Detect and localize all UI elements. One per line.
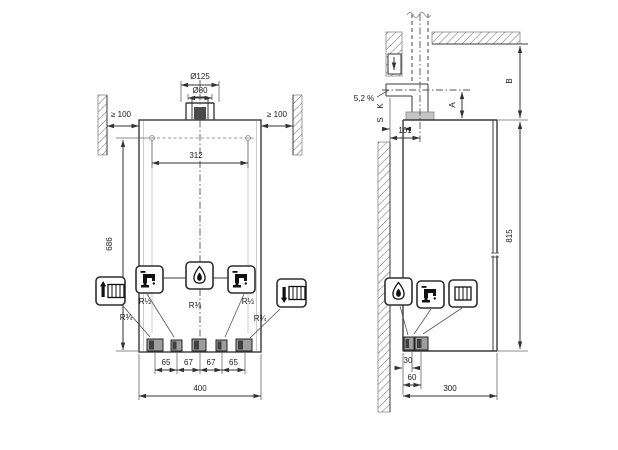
rear-offset-dimensions: 30 60 — [395, 352, 421, 395]
stub-spacing-1: 65 — [162, 358, 171, 367]
flue-inner-dia-label: Ø80 — [192, 86, 208, 95]
gas-flame-icon — [385, 278, 412, 305]
dim-label-k: K — [376, 103, 385, 109]
clearance-left-label: ≥ 100 — [111, 110, 132, 119]
front-view: Ø125 Ø80 ≥ 100 ≥ 100 31 — [96, 72, 306, 400]
radiator-icon — [449, 280, 477, 307]
hot-water-tap-icon — [136, 266, 163, 293]
body-depth-label: 300 — [443, 384, 457, 393]
horizontal-flue — [386, 84, 428, 112]
upper-wall-block — [386, 32, 402, 76]
total-height-dimension: 815 — [497, 122, 528, 351]
right-wall-hatch — [293, 95, 302, 155]
stub — [192, 339, 206, 351]
radiator-return-icon — [277, 279, 306, 307]
flue-slope-label: 5,2 % — [354, 94, 374, 103]
conn-label-gas: R¾ — [189, 301, 202, 310]
stub-spacing-4: 65 — [229, 358, 238, 367]
body-width-label: 400 — [193, 384, 207, 393]
body-depth-dimension: 300 — [403, 353, 497, 400]
stub — [216, 340, 227, 351]
flue-slope-annotation: 5,2 % — [354, 90, 389, 103]
vertical-flue-dashed — [407, 13, 431, 85]
stub — [171, 340, 182, 351]
boiler-installation-diagram: Ø125 Ø80 ≥ 100 ≥ 100 31 — [0, 0, 618, 450]
boiler-side-outline — [403, 120, 499, 351]
dimension-a: A — [448, 92, 462, 118]
wall-to-axis-dimension: 101 — [390, 126, 420, 138]
stub-spacing-3: 67 — [207, 358, 216, 367]
clearance-right-dimension: ≥ 100 — [261, 110, 293, 126]
conn-label-heating-return: R¾ — [254, 314, 267, 323]
flue-inner-dimension: Ø80 — [188, 86, 212, 100]
pipe-break-squiggle — [407, 13, 431, 18]
clearance-right-label: ≥ 100 — [267, 110, 288, 119]
wall-to-axis-label: 101 — [398, 126, 412, 135]
cold-water-tap-icon — [228, 266, 255, 293]
side-view: 5,2 % K S 101 A — [354, 13, 528, 413]
radiator-flow-icon — [96, 277, 125, 305]
dim-b-label: B — [505, 78, 514, 83]
dim-a-label: A — [448, 102, 457, 108]
ceiling-hatch — [432, 32, 528, 44]
clearance-left-dimension: ≥ 100 — [107, 110, 139, 126]
gas-flame-icon — [186, 262, 213, 289]
dim-label-s: S — [376, 117, 385, 122]
stub-spacing-dimensions: 65 67 67 65 — [155, 352, 245, 374]
stub-spacing-2: 67 — [184, 358, 193, 367]
rear-wall-hatch — [378, 98, 390, 412]
rear-offset-2-label: 60 — [408, 373, 417, 382]
stub — [415, 337, 428, 350]
stub — [147, 339, 163, 351]
rear-offset-1-label: 30 — [404, 356, 413, 365]
side-connection-stubs — [404, 337, 428, 350]
conn-label-hot-water: R½ — [139, 297, 152, 306]
tap-icon — [417, 281, 444, 308]
diagram-svg: Ø125 Ø80 ≥ 100 ≥ 100 31 — [0, 0, 618, 450]
stub — [236, 339, 252, 351]
left-wall-hatch — [98, 95, 107, 155]
body-height-label: 686 — [105, 237, 114, 251]
flue-outer-dia-label: Ø125 — [190, 72, 210, 81]
conn-label-cold-water: R½ — [242, 297, 255, 306]
connection-stubs — [147, 339, 252, 351]
dimension-b: B — [505, 46, 520, 118]
side-connection-leaders — [400, 306, 462, 335]
total-height-label: 815 — [505, 229, 514, 243]
stub — [404, 337, 414, 350]
conn-label-heating-flow: R¾ — [120, 313, 133, 322]
hole-spacing-label: 312 — [189, 151, 203, 160]
